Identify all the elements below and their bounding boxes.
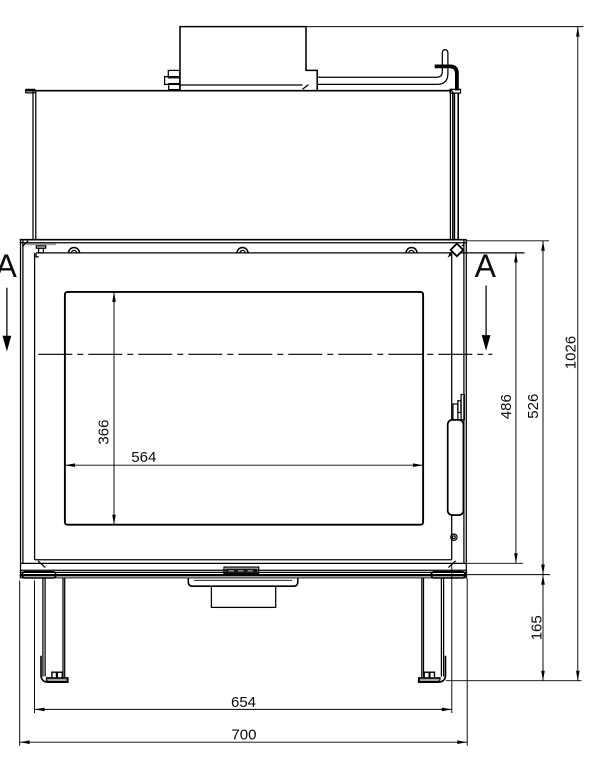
svg-text:526: 526 [525,394,542,419]
svg-text:A: A [0,248,18,284]
svg-text:A: A [475,248,497,284]
svg-text:654: 654 [231,694,256,711]
svg-text:1026: 1026 [563,336,580,369]
svg-text:165: 165 [529,615,546,640]
svg-text:366: 366 [96,420,113,445]
svg-text:564: 564 [131,449,156,466]
svg-text:700: 700 [231,727,256,744]
svg-text:486: 486 [498,394,515,419]
